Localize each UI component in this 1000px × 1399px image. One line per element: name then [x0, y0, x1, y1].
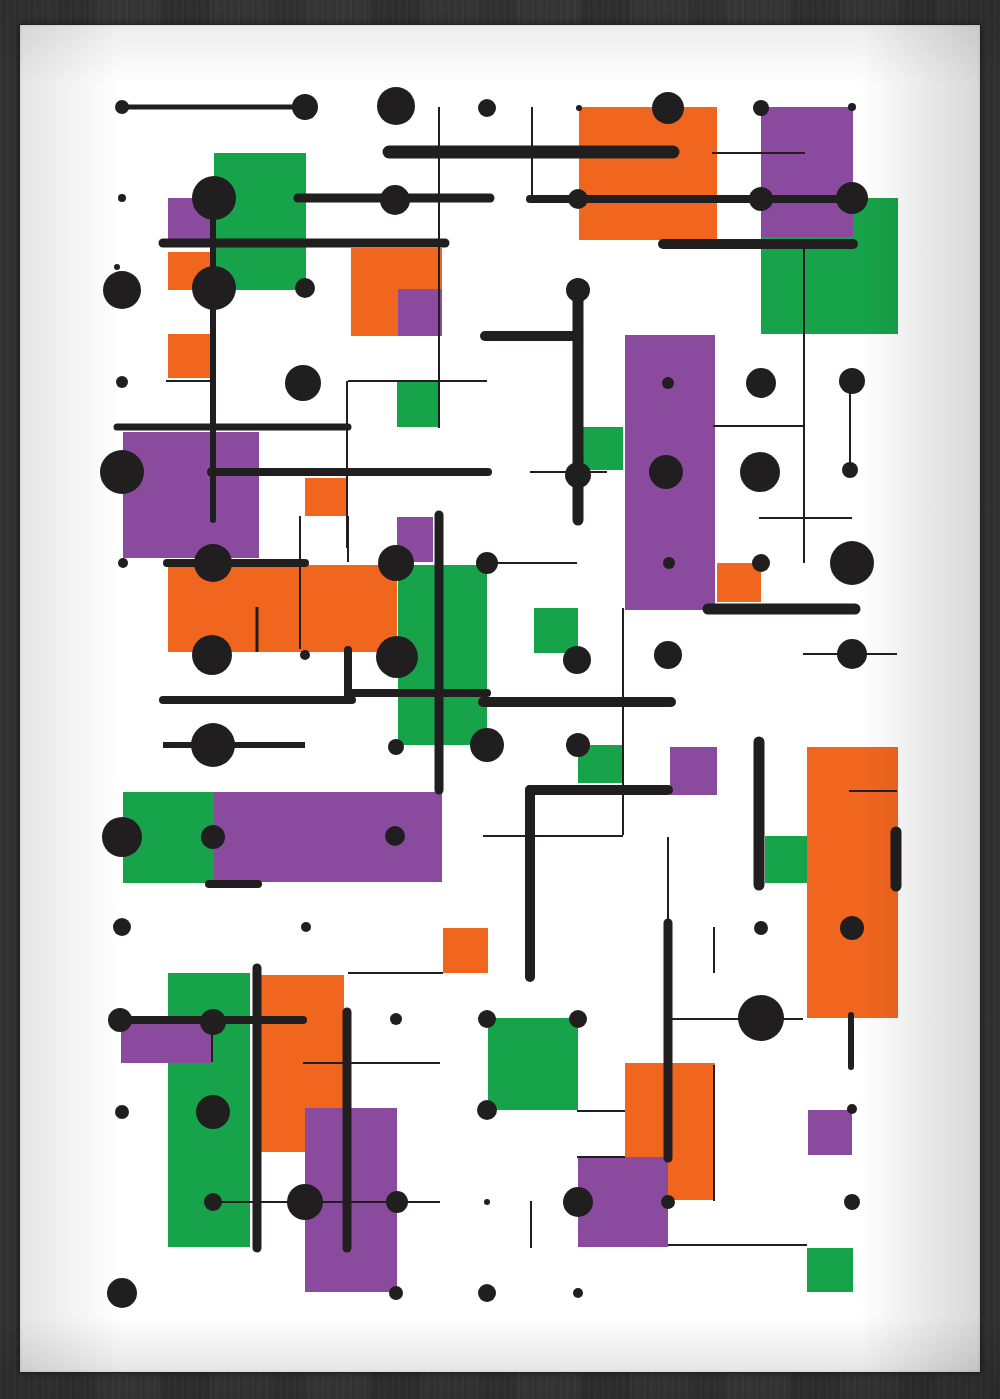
black-dot	[484, 1199, 490, 1205]
black-dot	[566, 278, 590, 302]
black-dot	[478, 1010, 496, 1028]
black-dot	[376, 636, 418, 678]
black-dot	[194, 544, 232, 582]
green-rect	[488, 1018, 578, 1110]
purple-rect	[123, 432, 259, 558]
black-dot	[746, 368, 776, 398]
art-print-paper	[20, 25, 980, 1372]
green-rect	[582, 427, 623, 470]
black-dot	[118, 558, 128, 568]
black-dot	[837, 639, 867, 669]
black-dot	[568, 189, 588, 209]
black-dot	[386, 1191, 408, 1213]
black-dot	[380, 185, 410, 215]
black-dot	[563, 1187, 593, 1217]
black-dot	[566, 733, 590, 757]
black-dot	[573, 1288, 583, 1298]
black-dot	[478, 1284, 496, 1302]
black-dot	[652, 92, 684, 124]
black-dot	[207, 467, 217, 477]
purple-rect	[121, 1024, 211, 1063]
green-rect	[214, 153, 306, 290]
black-dot	[847, 1104, 857, 1114]
black-dot	[840, 916, 864, 940]
wall-background	[0, 0, 1000, 1399]
black-dot	[477, 1100, 497, 1120]
green-rect	[534, 608, 578, 653]
black-dot	[389, 1286, 403, 1300]
black-dot	[118, 194, 126, 202]
black-dot	[114, 264, 120, 270]
black-dot	[100, 450, 144, 494]
black-dot	[108, 1008, 132, 1032]
orange-rect	[579, 107, 717, 240]
black-dot	[300, 650, 310, 660]
black-dot	[661, 1195, 675, 1209]
black-dot	[663, 557, 675, 569]
black-dot	[830, 541, 874, 585]
purple-rect	[808, 1110, 852, 1155]
purple-rect	[761, 107, 853, 237]
purple-rect	[214, 792, 442, 882]
black-dot	[295, 278, 315, 298]
black-dot	[738, 995, 784, 1041]
black-dot	[753, 100, 769, 116]
purple-rect	[398, 289, 442, 336]
black-dot	[115, 100, 129, 114]
black-dot	[377, 87, 415, 125]
black-dot	[192, 176, 236, 220]
black-dot	[476, 552, 498, 574]
black-dot	[385, 826, 405, 846]
black-dot	[113, 918, 131, 936]
black-dot	[569, 1010, 587, 1028]
green-rect	[807, 1248, 853, 1292]
black-dot	[107, 1278, 137, 1308]
orange-rect	[807, 747, 898, 1018]
orange-rect	[305, 478, 348, 516]
black-dot	[478, 99, 496, 117]
black-dot	[844, 1194, 860, 1210]
black-dot	[565, 462, 591, 488]
black-dot	[470, 728, 504, 762]
green-rect	[397, 382, 440, 427]
orange-rect	[168, 334, 212, 378]
black-dot	[390, 1013, 402, 1025]
black-dot	[301, 922, 311, 932]
black-dot	[842, 462, 858, 478]
orange-rect	[443, 928, 488, 973]
black-dot	[836, 182, 868, 214]
black-dot	[285, 365, 321, 401]
black-dot	[116, 376, 128, 388]
black-dot	[103, 271, 141, 309]
black-dot	[287, 1184, 323, 1220]
black-dot	[378, 545, 414, 581]
black-dot	[192, 635, 232, 675]
black-dot	[102, 817, 142, 857]
black-dot	[200, 1009, 226, 1035]
purple-rect	[670, 747, 717, 795]
black-dot	[201, 825, 225, 849]
black-dot	[192, 266, 236, 310]
black-dot	[649, 455, 683, 489]
black-dot	[204, 1193, 222, 1211]
black-dot	[563, 646, 591, 674]
black-dot	[754, 921, 768, 935]
black-dot	[191, 723, 235, 767]
black-dot	[749, 187, 773, 211]
black-dot	[662, 377, 674, 389]
black-dot	[848, 103, 856, 111]
black-dot	[388, 739, 404, 755]
green-rect	[765, 836, 808, 883]
black-dot	[752, 554, 770, 572]
black-dot	[740, 452, 780, 492]
black-dot	[196, 1095, 230, 1129]
black-dot	[576, 105, 582, 111]
black-dot	[654, 641, 682, 669]
black-dot	[115, 1105, 129, 1119]
abstract-artwork	[20, 25, 980, 1372]
black-dot	[839, 368, 865, 394]
black-dot	[292, 94, 318, 120]
